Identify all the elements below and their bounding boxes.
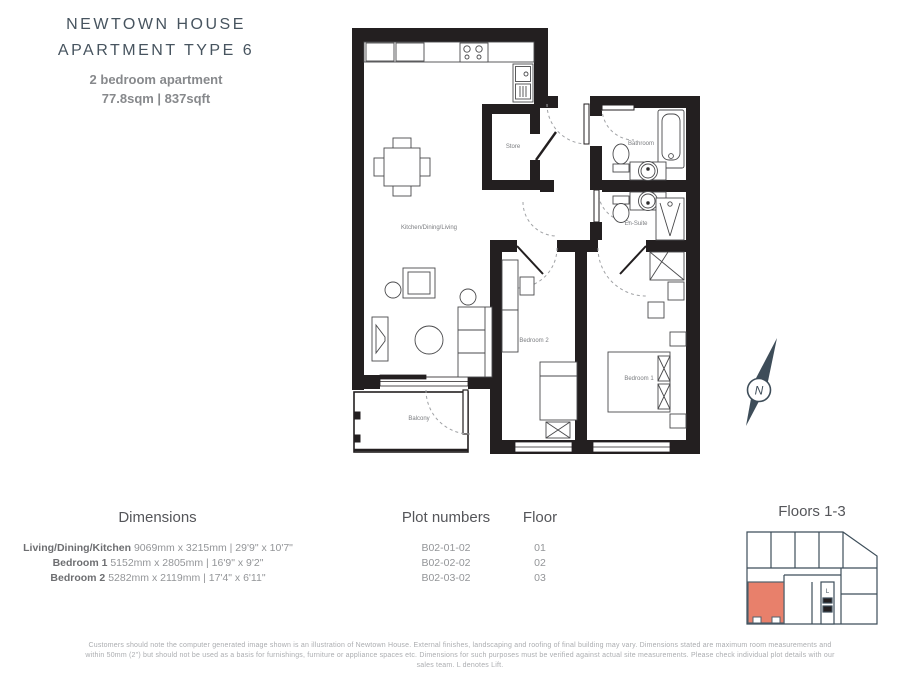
floor-number: 01 [510,541,570,556]
coffee-table [415,326,443,354]
dimension-row: Living/Dining/Kitchen 9069mm x 3215mm | … [0,541,316,556]
label-bathroom: Bathroom [628,141,654,147]
label-ensuite: En-Suite [624,221,648,227]
room-name: Bedroom 2 [50,572,105,584]
bedside-table-2 [670,414,686,428]
plot-numbers-header: Plot numbers [390,509,502,526]
room-dims: 5282mm x 2119mm | 17'4" x 6'11" [108,572,265,584]
shower [656,198,684,240]
label-bedroom2: Bedroom 2 [519,338,549,344]
living-furniture [372,138,492,377]
label-store: Store [506,144,521,150]
bedroom2-bed [540,362,577,438]
floor-number: 02 [510,556,570,571]
hall-living-door-arc [523,202,557,236]
room-name: Living/Dining/Kitchen [23,542,131,554]
floor-header: Floor [510,509,570,526]
bedroom1-wardrobe [648,252,684,318]
basin-bathroom [630,162,666,181]
bedroom-furniture [502,252,686,438]
apartment-type: 2 bedroom apartment [26,70,286,89]
store-door-leaf [536,132,556,160]
north-arrow: N [720,330,810,440]
side-table [385,282,401,298]
hob [460,43,488,62]
title-block: NEWTOWN HOUSE APARTMENT TYPE 6 2 bedroom… [26,12,286,108]
apartment-subtitle: 2 bedroom apartment 77.8sqm | 837sqft [26,70,286,108]
toilet-bathroom [613,144,629,172]
label-kitchen: Kitchen/Dining/Living [401,225,457,231]
page-title-line1: NEWTOWN HOUSE [26,12,286,38]
appliance-2 [396,43,424,61]
bedside-table-1 [670,332,686,346]
dimensions-list: Living/Dining/Kitchen 9069mm x 3215mm | … [0,541,316,586]
entrance-door-leaf [584,104,589,144]
appliance-1 [366,43,394,61]
ensuite-door-leaf [594,190,599,222]
bathtub [658,110,684,168]
label-balcony: Balcony [408,416,429,422]
balcony-door-leaf [463,390,468,434]
keyplan-block: Floors 1-3 L [737,503,887,634]
plot-number: B02-02-02 [390,556,502,571]
kitchen-fixtures [364,42,534,102]
dimension-row: Bedroom 1 5152mm x 2805mm | 16'9" x 9'2" [0,556,316,571]
north-letter: N [755,384,764,398]
page-title-line2: APARTMENT TYPE 6 [26,38,286,64]
floor-list: 01 02 03 [510,541,570,586]
sofa [458,307,492,377]
room-dims: 9069mm x 3215mm | 29'9" x 10'7" [134,542,293,554]
bathroom-door-leaf [602,105,634,110]
floor-number: 03 [510,571,570,586]
side-table-2 [460,289,476,305]
brochure-page: NEWTOWN HOUSE APARTMENT TYPE 6 2 bedroom… [0,0,899,674]
room-name: Bedroom 1 [53,557,108,569]
disclaimer-text: Customers should note the computer gener… [85,641,835,671]
label-bedroom1: Bedroom 1 [624,376,654,382]
dining-table [374,138,430,196]
keyplan-drawing: L [737,524,887,629]
floorplan-drawing: Kitchen/Dining/Living Store Bathroom En-… [350,20,710,465]
plot-number: B02-01-02 [390,541,502,556]
apartment-area: 77.8sqm | 837sqft [26,89,286,108]
bedroom1-door-leaf [620,246,646,274]
plot-number: B02-03-02 [390,571,502,586]
bedroom2-door-leaf [517,246,543,274]
dimensions-header: Dimensions [80,509,235,526]
armchair [403,268,435,298]
bathroom-door-arc [602,108,634,140]
plot-numbers-list: B02-01-02 B02-02-02 B02-03-02 [390,541,502,586]
room-dims: 5152mm x 2805mm | 16'9" x 9'2" [110,557,263,569]
sink-unit [513,64,533,102]
toilet-ensuite [613,196,629,223]
tv-unit [372,317,388,361]
keyplan-title: Floors 1-3 [737,503,887,520]
dimension-row: Bedroom 2 5282mm x 2119mm | 17'4" x 6'11… [0,571,316,586]
